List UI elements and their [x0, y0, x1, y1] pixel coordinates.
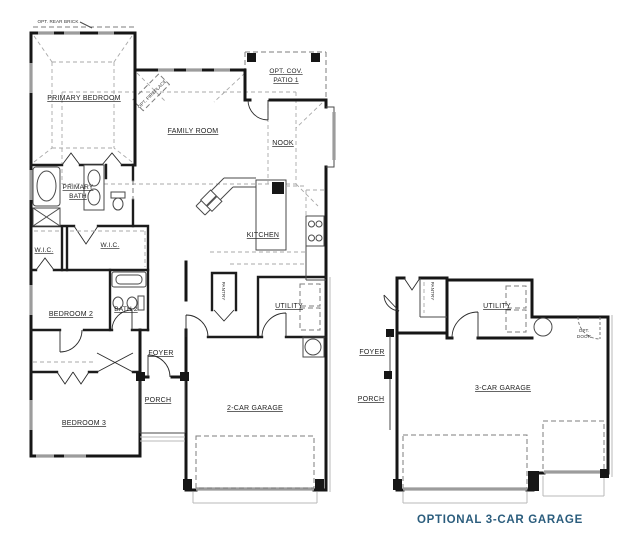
primary-bedroom-label: PRIMARY BEDROOM: [47, 95, 121, 102]
kitchen-sink: [201, 190, 222, 211]
primary-bath-door: [74, 226, 98, 244]
front-door: [148, 355, 170, 377]
primary-toilet: [111, 192, 125, 210]
bath2-door: [112, 310, 132, 330]
washer: [300, 284, 320, 306]
pantry-door: [214, 310, 234, 321]
porch-label: PORCH: [145, 397, 172, 404]
primary-bath-label: PRIMARY: [63, 184, 94, 191]
optional-covered-patio: [245, 52, 326, 98]
alt-pantry-door: [404, 278, 420, 290]
patio-post: [247, 53, 256, 62]
foyer-label: FOYER: [148, 350, 173, 357]
alt-water-heater: [534, 318, 552, 336]
wic-right-label: W.I.C.: [101, 242, 120, 249]
shower: [33, 208, 60, 226]
alt-fixtures: [506, 286, 552, 336]
kitchen-label: KITCHEN: [247, 232, 279, 239]
patio-post: [311, 53, 320, 62]
utility-label: UTILITY: [275, 303, 303, 310]
bedroom3-label: BEDROOM 3: [62, 420, 106, 427]
opt-fireplace-label: OPT. FIREPLACE: [137, 79, 168, 110]
primary-bedroom-doors: [62, 153, 122, 165]
alt-room-labels: PANTRY UTILITY FOYER PORCH 3-CAR GARAGE …: [358, 282, 592, 403]
alt-porch-label: PORCH: [358, 396, 385, 403]
wic-left-door: [36, 258, 54, 270]
garage-entry-door: [186, 315, 208, 337]
water-heater: [305, 339, 321, 355]
bedroom2-door: [60, 330, 82, 352]
pantry-label: PANTRY: [221, 282, 226, 301]
bath2-label: BATH 2: [114, 306, 138, 313]
floor-plan-page: OPT. REAR BRICK PRIMARY BEDROOM FAMILY R…: [0, 0, 639, 548]
nook-label: NOOK: [272, 140, 294, 147]
alt-opt-door-label: OPT.: [579, 328, 590, 333]
main-floor-plan: OPT. REAR BRICK PRIMARY BEDROOM FAMILY R…: [31, 19, 334, 503]
garage-label: 2-CAR GARAGE: [227, 405, 283, 412]
patio-door: [248, 100, 268, 120]
primary-bath-label2: BATH: [69, 193, 87, 200]
dryer: [300, 308, 320, 330]
floor-plan-drawing: OPT. REAR BRICK PRIMARY BEDROOM FAMILY R…: [0, 0, 639, 548]
utility-door: [262, 313, 286, 337]
doors: [36, 100, 286, 384]
bedroom3-doors: [97, 353, 133, 372]
alt-utility-label: UTILITY: [483, 303, 511, 310]
plan-caption: OPTIONAL 3-CAR GARAGE: [417, 514, 583, 526]
range: [306, 216, 324, 246]
alt-foyer-label: FOYER: [359, 349, 384, 356]
alt-dryer: [506, 310, 526, 332]
wic-left-label: W.I.C.: [35, 247, 54, 254]
garage-door-clearance: [196, 436, 314, 488]
sink: [88, 189, 100, 205]
alt-opt-door-label2: DOOR: [577, 334, 592, 339]
opt-rear-brick-label: OPT. REAR BRICK: [37, 19, 79, 24]
alt-garage-door-clearance-2: [543, 421, 604, 472]
alt-utility-door: [452, 312, 478, 338]
family-room-label: FAMILY ROOM: [168, 128, 219, 135]
room-labels: OPT. REAR BRICK PRIMARY BEDROOM FAMILY R…: [35, 19, 303, 427]
alt-garage-label: 3-CAR GARAGE: [475, 385, 531, 392]
optional-3-car-garage-plan: PANTRY UTILITY FOYER PORCH 3-CAR GARAGE …: [358, 278, 612, 503]
bedroom3-closet-doors: [57, 372, 89, 384]
opt-cov-patio-label: OPT. COV.: [269, 68, 302, 75]
opt-cov-patio-label2: PATIO 1: [273, 77, 299, 84]
alt-garage-area: [384, 315, 612, 503]
bedroom2-label: BEDROOM 2: [49, 311, 93, 318]
porch: [136, 372, 189, 441]
alt-garage-door-clearance-1: [403, 435, 527, 490]
kitchen-counters: [196, 178, 326, 280]
kitchen-post: [272, 182, 284, 194]
garage-area: [183, 277, 330, 503]
alt-pantry-label: PANTRY: [430, 282, 435, 301]
